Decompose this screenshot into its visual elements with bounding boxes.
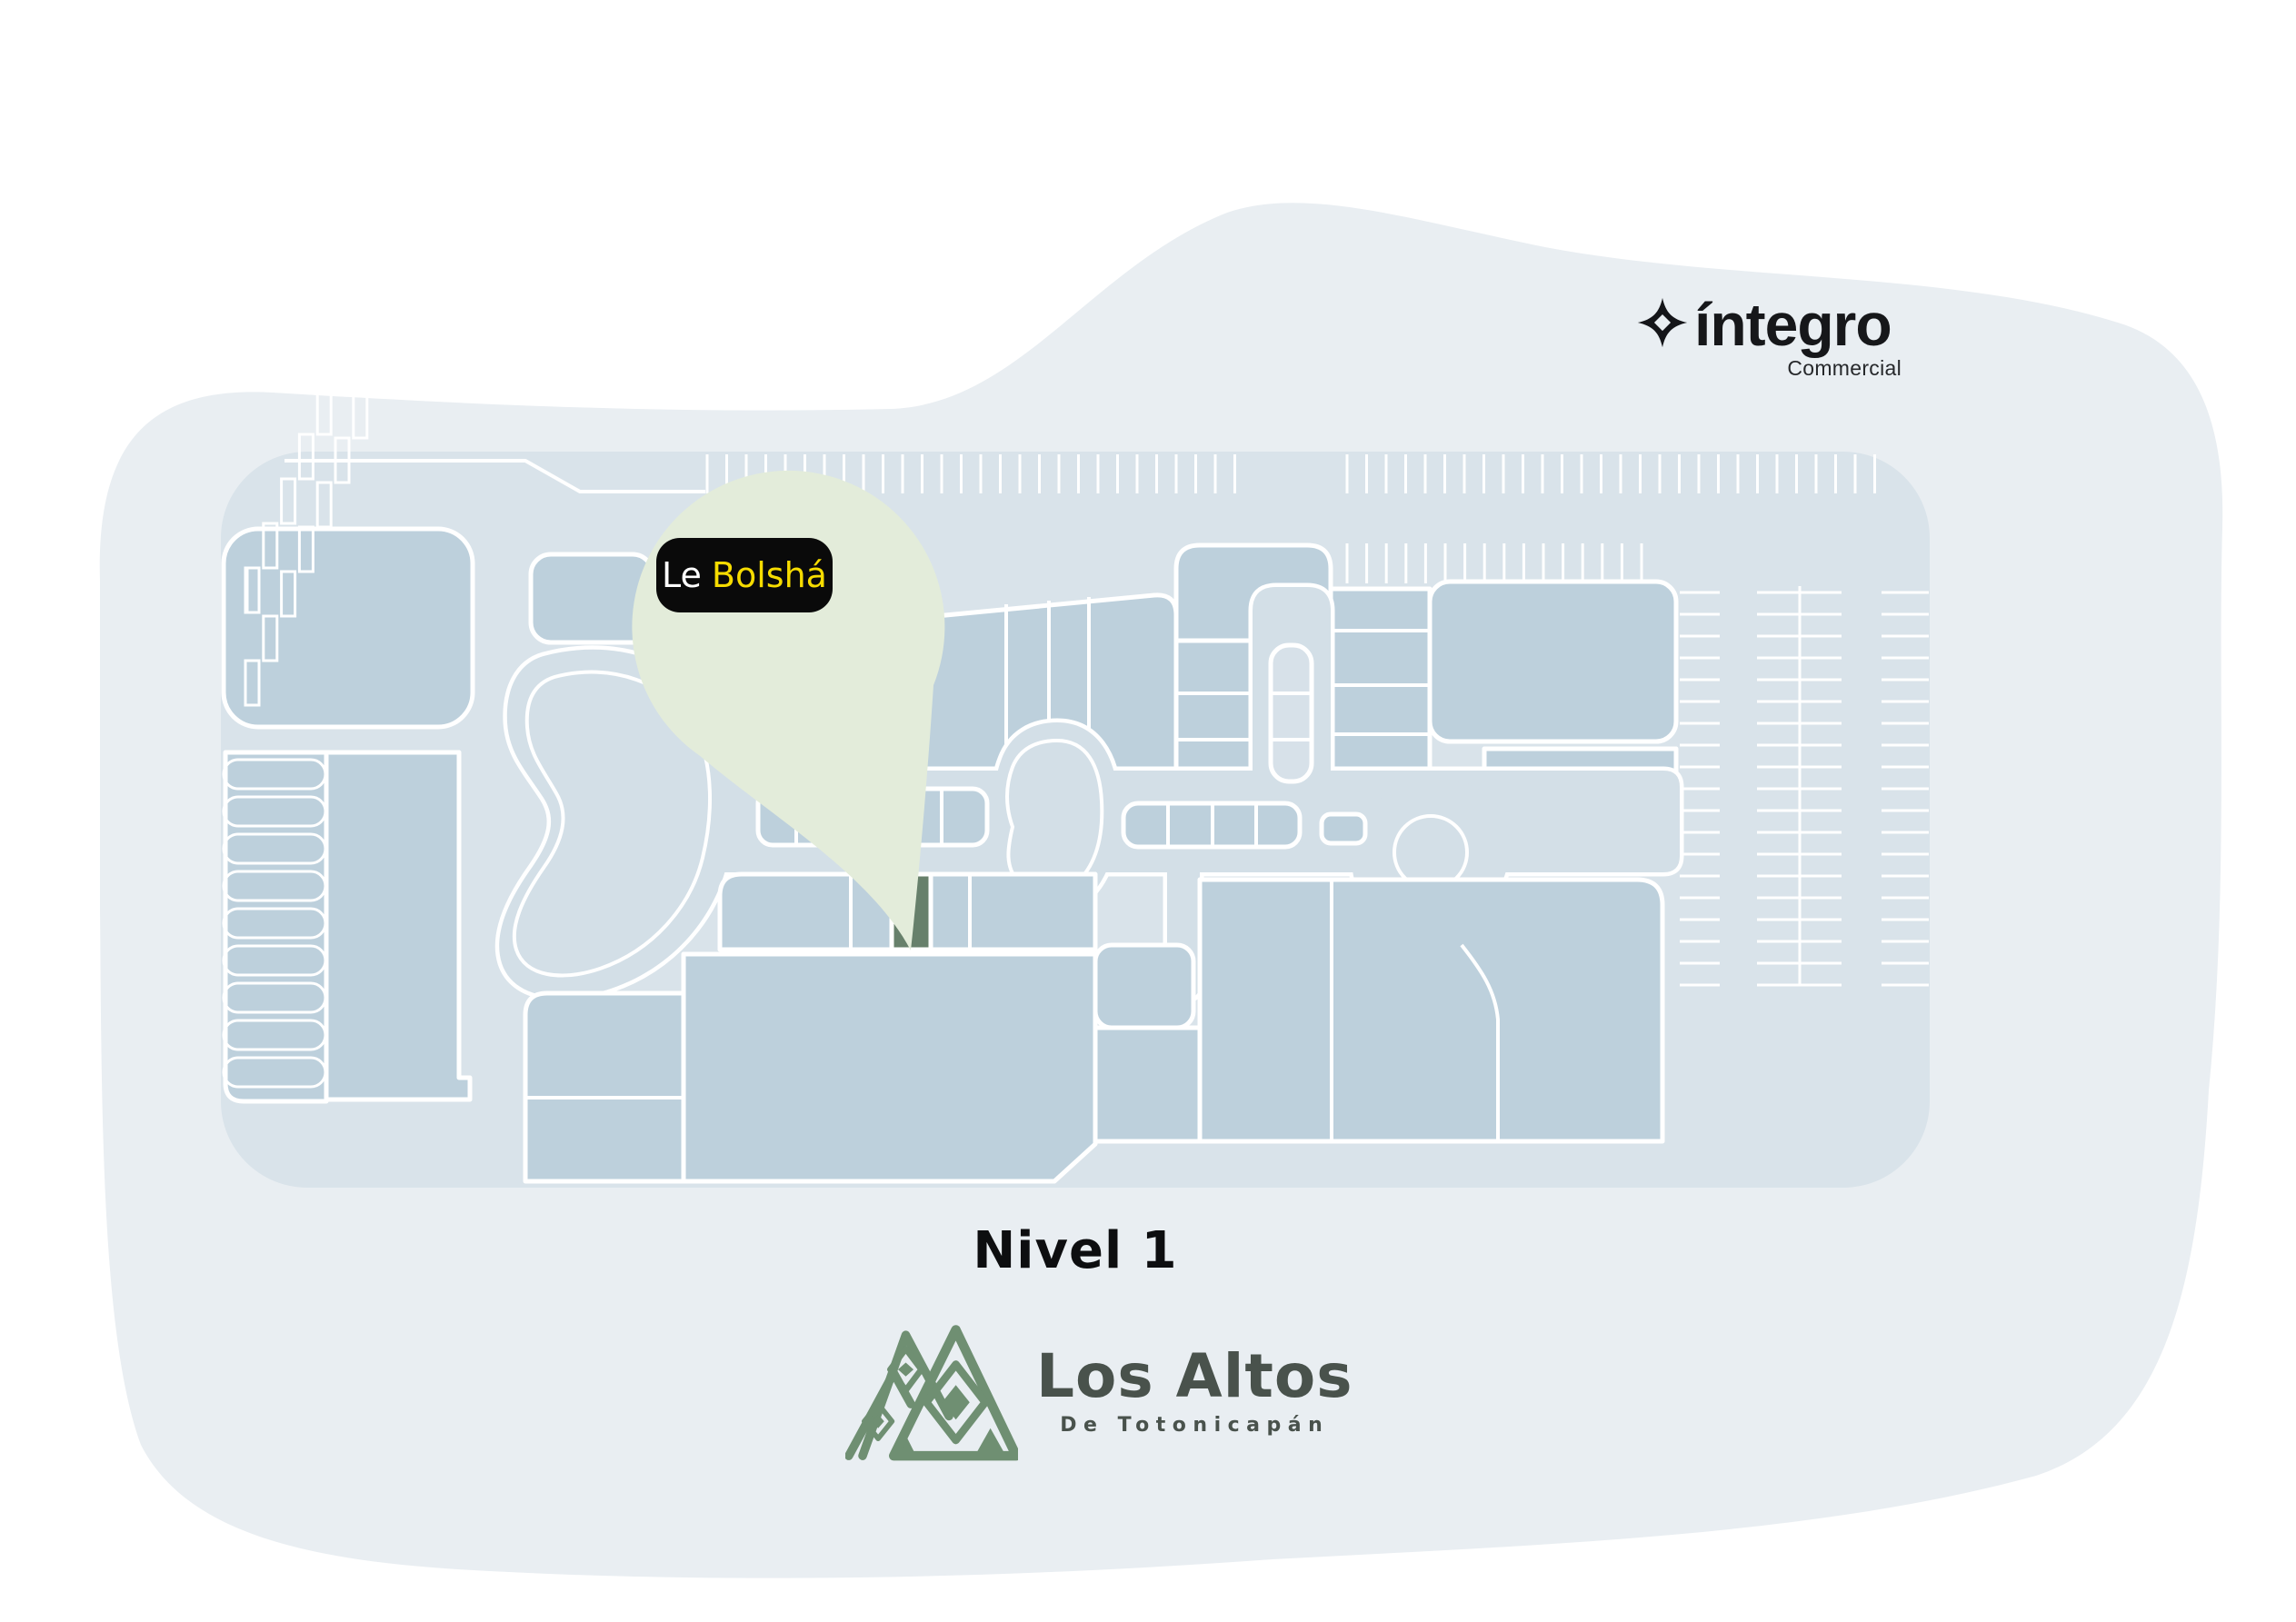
mall-map-page: íntegro Commercial Le Bolshá Nivel 1 <box>0 0 2296 1622</box>
south-block-4 <box>1095 1028 1200 1141</box>
mall-subtitle: De Totonicapán <box>1060 1414 1329 1437</box>
store-column-right-of-corridor <box>1331 589 1430 776</box>
south-block-1 <box>525 993 684 1181</box>
mountains-icon <box>845 1318 1018 1466</box>
level-label: Nivel 1 <box>973 1221 1177 1280</box>
south-block-2 <box>684 954 1095 1181</box>
south-block-5 <box>1200 880 1662 1141</box>
brand-name: íntegro <box>1694 294 1892 354</box>
star-icon <box>1636 296 1689 353</box>
corridor-kiosk-island <box>1271 645 1312 781</box>
south-block-3 <box>1095 945 1193 1028</box>
mall-name: Los Altos <box>1036 1347 1353 1407</box>
anchor-store-upper <box>1430 582 1676 741</box>
store-pin-label: Le Bolshá <box>656 538 833 612</box>
mall-logo-lockup: Los Altos De Totonicapán <box>845 1318 1353 1466</box>
kiosk-small <box>1322 814 1365 843</box>
store-label-name: Bolshá <box>712 555 827 595</box>
parking-structure <box>224 529 473 727</box>
west-building <box>326 752 470 1100</box>
brand-division: Commercial <box>1787 356 1902 381</box>
store-label-prefix: Le <box>662 555 702 595</box>
brand-lockup: íntegro Commercial <box>1636 294 1902 381</box>
store-column-left-of-corridor <box>1176 641 1255 774</box>
